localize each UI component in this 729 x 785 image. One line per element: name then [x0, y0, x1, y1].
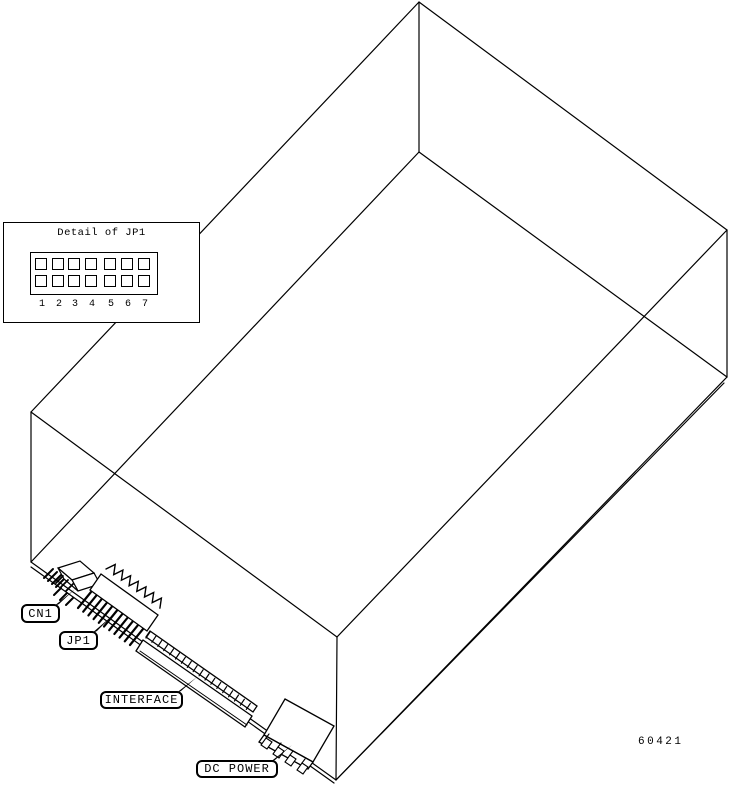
callout-cn1: CN1 — [21, 604, 60, 623]
interface-connector — [136, 631, 257, 727]
jumper-pin-cell — [138, 258, 150, 270]
callout-cn1-label: CN1 — [28, 607, 53, 621]
pin-number: 5 — [104, 299, 118, 311]
callout-interface: INTERFACE — [100, 691, 183, 709]
jp1-pin-block — [30, 252, 158, 295]
callout-dc-power-label: DC POWER — [204, 762, 270, 776]
callout-interface-label: INTERFACE — [105, 693, 179, 707]
jumper-pin-cell — [121, 275, 133, 287]
callout-dc-power: DC POWER — [196, 760, 278, 778]
callout-jp1-label: JP1 — [66, 634, 91, 648]
jumper-pin-cell — [52, 275, 64, 287]
jumper-pin-cell — [104, 275, 116, 287]
pin-number: 2 — [52, 299, 66, 311]
pin-number: 6 — [121, 299, 135, 311]
isometric-drive-drawing — [0, 0, 729, 785]
jumper-pin-cell — [121, 258, 133, 270]
jumper-pin-cell — [68, 275, 80, 287]
jumper-pin-cell — [68, 258, 80, 270]
cn1-connector — [44, 561, 100, 605]
inset-title: Detail of JP1 — [4, 227, 199, 239]
jumper-pin-cell — [85, 275, 97, 287]
jumper-pin-cell — [52, 258, 64, 270]
jumper-pin-cell — [35, 275, 47, 287]
jp1-detail-inset: Detail of JP1 1 2 3 4 5 6 7 — [3, 222, 200, 323]
callout-jp1: JP1 — [59, 631, 98, 650]
pin-number: 1 — [35, 299, 49, 311]
figure-number: 60421 — [638, 736, 684, 748]
figure-canvas: Detail of JP1 1 2 3 4 5 6 7 CN1 JP1 — [0, 0, 729, 785]
jumper-pin-cell — [104, 258, 116, 270]
jumper-pin-cell — [85, 258, 97, 270]
pin-number: 7 — [138, 299, 152, 311]
jumper-pin-cell — [138, 275, 150, 287]
pin-number: 4 — [85, 299, 99, 311]
pin-number: 3 — [68, 299, 82, 311]
jumper-pin-cell — [35, 258, 47, 270]
drive-outline — [31, 2, 727, 783]
